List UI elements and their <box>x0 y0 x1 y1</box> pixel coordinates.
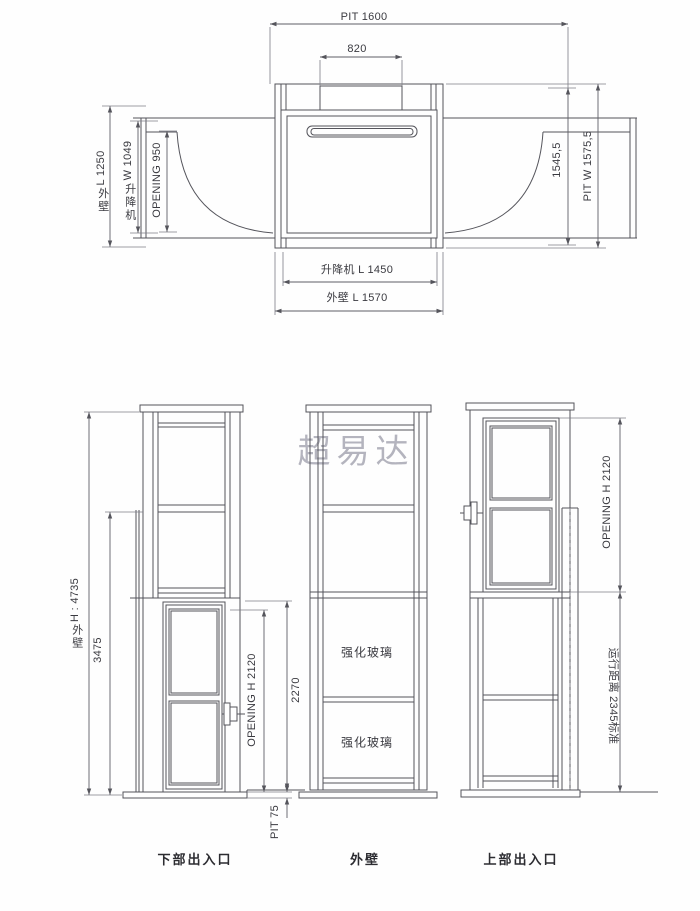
caption-upper-entrance: 上部出入口 <box>483 853 558 867</box>
glass-panel-label-2: 强化玻璃 <box>341 737 393 750</box>
glass-panel-label-1: 强化玻璃 <box>341 647 393 660</box>
upper-door <box>483 418 559 592</box>
dim-lift-width-left: W 1049 升降机 <box>123 141 135 222</box>
dim-upper-opening-height: OPENING H 2120 <box>602 455 614 548</box>
dim-pit-depth-elevation: PIT 75 <box>270 805 282 839</box>
elevation-lower-entrance <box>84 405 305 818</box>
lower-door <box>163 602 225 792</box>
machine-box <box>320 86 402 110</box>
door-swing-arc-right <box>445 132 543 233</box>
lift-technical-drawing: 超易达 <box>0 0 700 911</box>
caption-lower-entrance: 下部出入口 <box>157 853 232 867</box>
dim-overall-height-value: H : 4735 <box>70 578 82 622</box>
dim-travel-distance: 运行距离 2345标准 <box>606 648 618 745</box>
dim-outer-wall-length: 外壁 L 1570 <box>327 293 388 305</box>
elevation-upper-entrance <box>460 403 658 797</box>
dim-outer-wall-left-text: 外壁 <box>96 188 108 214</box>
dim-overall-height: H : 4735 外壁 <box>70 578 82 650</box>
dim-lower-opening-height: OPENING H 2120 <box>247 653 259 746</box>
dim-lift-width-left-text: 升降机 <box>123 182 135 221</box>
dim-outer-wall-left: L 1250 外壁 <box>96 150 108 213</box>
door-swing-arc-left <box>177 132 273 233</box>
dim-lower-door-height: 2270 <box>291 677 303 703</box>
drawing-linework <box>0 0 700 911</box>
dim-machine-opening: 820 <box>347 44 366 56</box>
dim-upper-landing-height: 3475 <box>93 637 105 663</box>
dim-lift-width-left-value: W 1049 <box>123 141 135 181</box>
dim-pit-depth-plan: PIT W 1575,5 <box>583 131 595 202</box>
dim-lift-length: 升降机 L 1450 <box>321 265 393 277</box>
dim-inner-depth: 1545,5 <box>552 142 564 177</box>
dim-outer-wall-left-value: L 1250 <box>96 150 108 185</box>
caption-outer-wall: 外壁 <box>350 853 380 867</box>
dim-overall-height-text: 外壁 <box>70 624 82 650</box>
dim-pit-width: PIT 1600 <box>341 12 388 24</box>
dim-opening-left: OPENING 950 <box>152 142 164 217</box>
